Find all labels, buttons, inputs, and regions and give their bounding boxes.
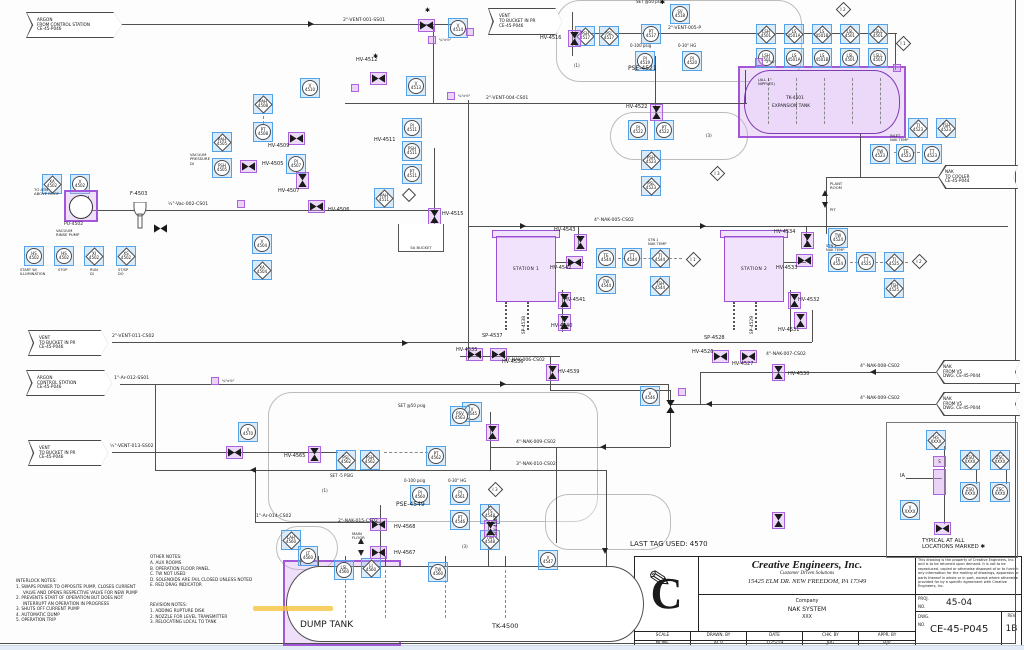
instrument-tsh-4523: TSH4523 — [936, 118, 956, 138]
label-hv-4530: HV-4530 — [788, 372, 809, 378]
label-2-vent-011-cs02: 2"-VENT-011-CS02 — [112, 334, 154, 339]
revision-notes-list: 1. ADDING RUPTURE DISK2. NOZZLE FOR LEVE… — [150, 608, 268, 624]
pipe-line — [468, 100, 469, 360]
flow-arrow — [706, 401, 712, 407]
instrument-pi-4561: PI4561 — [450, 485, 470, 505]
label-hv-4542: HV-4542 — [550, 266, 571, 272]
typical-star: ✱ — [425, 8, 430, 14]
label-pse-4521: PSE-4521 — [628, 66, 657, 73]
instrument-psh-4523: PSH4523 — [641, 150, 661, 170]
instrument-v-4547: V4547 — [538, 550, 558, 570]
pipe-size-tag — [466, 28, 474, 36]
valve-icon — [288, 132, 305, 145]
instrument-ti-4523: TI4523 — [908, 118, 928, 138]
interlock-notes-title: INTERLOCK NOTES: — [16, 578, 144, 583]
instrument-li-4560: LI4560 — [361, 558, 381, 578]
interlock-notes-list: 1. SWAPS POWER TO OPPOSITE PUMP, CLOSES … — [16, 584, 144, 622]
label-vacuum-pressure-di: VACUUM PRESSURE DI — [190, 153, 210, 166]
label-vent-013-ss02: ½"-VENT-013-SS02 — [110, 444, 154, 449]
instrument-ls-4501b: LS4501B — [812, 24, 832, 44]
interlock-diamond: I 1 — [686, 252, 700, 266]
label-0-30-hg: 0-30" HG — [448, 479, 466, 484]
note-item: E. RED DRAG INDICATOR — [150, 582, 268, 587]
company-system-cell: Company NAK SYSTEM XXX — [699, 595, 915, 631]
label-4-nak-005-cs02: 4"-NAK-005-CS02 — [594, 218, 634, 223]
flag-text: CE-45-P044 — [945, 179, 1023, 184]
label-st-sp-do: ST/SP DO — [118, 268, 128, 276]
valve-icon — [574, 234, 587, 251]
dwg-label: DWG. — [918, 614, 929, 619]
label-tk-4501: TK-4501 — [786, 96, 804, 101]
instrument-pah-4511: PAH4511 — [374, 188, 394, 208]
label-set-5-psig: SET -5 PSIG — [330, 474, 353, 479]
instrument-ti-4525: TI4525 — [884, 252, 904, 272]
col-drawn: DRAWN. BY — [691, 632, 747, 641]
station-box-station-2: STATION 2 — [724, 236, 784, 302]
instrument-te-4524: TE4524 — [828, 252, 848, 272]
signal-line — [505, 570, 506, 618]
instrument-v-4514: V4514 — [448, 18, 468, 38]
instrument-psl-4562: PSL4562 — [336, 450, 356, 470]
diamond-symbol — [402, 188, 416, 202]
label-sp-4537: SP-4537 — [482, 334, 503, 340]
label-hv-4506: HV-4506 — [328, 208, 349, 214]
instrument-pah-4508: PAH4508 — [253, 94, 273, 114]
instrument-tt-4544: TT4544 — [622, 248, 642, 268]
pipe-line — [812, 310, 813, 342]
interlock-diamond: I 3 — [488, 482, 502, 496]
pipe-line — [670, 390, 671, 447]
label-pit: PIT — [830, 208, 836, 212]
system-name: NAK SYSTEM — [699, 606, 915, 613]
instrument-ls-4501b: LS4501B — [812, 48, 832, 68]
pipe-line — [120, 24, 460, 25]
valve-icon — [428, 208, 441, 225]
label-sp-4529: SP-4529 — [750, 316, 755, 334]
valve-icon — [226, 446, 243, 459]
flow-arrow — [500, 381, 506, 387]
valve-icon — [712, 350, 729, 363]
valve-icon — [772, 364, 785, 381]
company-logo: C ✎ — [635, 557, 699, 631]
pipe-size-tag: ¾"x½" — [428, 36, 436, 44]
pipe-size-label: ¾"x½" — [222, 379, 234, 383]
label-4-nak-009-cs02: 4"-NAK-009-CS02 — [860, 396, 900, 401]
instrument-xi-4502: XI4502 — [84, 246, 104, 266]
instrument-sv-4518: SV4518 — [670, 4, 690, 24]
label-4-nak-008-cs02: 4"-NAK-008-CS02 — [860, 364, 900, 369]
instrument-pt-4517: PT4517 — [641, 24, 661, 44]
revision-notes: REVISION NOTES: 1. ADDING RUPTURE DISK2.… — [150, 602, 268, 625]
interlock-number: I 3 — [710, 166, 724, 180]
pipe-line — [700, 372, 936, 373]
label-hv-4516: HV-4516 — [540, 36, 561, 42]
flex-spring — [527, 302, 529, 330]
pipe-line — [155, 470, 606, 471]
label-hv-4548: HV-4548 — [494, 516, 499, 535]
label-hv-4512: HV-4512 — [356, 58, 377, 64]
filter-symbol — [130, 202, 150, 234]
proj-no-cell: PROJ. NO. 45-04 — [915, 595, 1021, 612]
instrument-tw-4544: TW4544 — [596, 274, 616, 294]
interlock-diamond: I 1 — [896, 36, 910, 50]
pipe-size-label: ¾"x½" — [458, 94, 470, 98]
pipe-size-tag — [933, 469, 946, 495]
instrument-lt-4560: LT4560 — [298, 546, 318, 566]
valve-icon — [418, 19, 435, 32]
valve-icon — [370, 546, 387, 559]
pipe-line — [490, 447, 670, 448]
instrument-zsc-xxxx: ZSCXXXX — [990, 450, 1010, 470]
pipe-line — [104, 210, 434, 211]
instrument-pi-4522: PI4522 — [628, 120, 648, 140]
offpage-flag-vent-to-bucket-in-pr-ce-45-p046: VENTTO BUCKET IN PRCE-45-P046 — [28, 440, 108, 466]
signal-line — [824, 78, 825, 124]
instrument-pt-4522: PT4522 — [654, 120, 674, 140]
instrument-tt-4523: TT4523 — [922, 144, 942, 164]
pipe-line — [434, 148, 435, 210]
title-block: C ✎ Creative Engineers, Inc. Customer Dr… — [634, 556, 1022, 650]
proj-no-label: NO. — [918, 604, 925, 609]
flow-arrow — [402, 340, 408, 346]
note-item: 2. PREVENTS START OF OPERATION BUT DOES … — [16, 595, 144, 606]
label-1-ar-012-ss01: 1"-Ar-012-SS01 — [114, 376, 149, 381]
instrument-v-xxxx: VXXXX — [900, 500, 920, 520]
note-item: 1. SWAPS POWER TO OPPOSITE PUMP, CLOSES … — [16, 584, 144, 595]
pipe-size-tag — [678, 388, 686, 396]
valve-icon — [154, 224, 167, 233]
flow-arrow — [358, 550, 364, 556]
instrument-lsll-4501: LSLL4501 — [868, 48, 888, 68]
interlock-notes: INTERLOCK NOTES: 1. SWAPS POWER TO OPPOS… — [16, 578, 144, 623]
valve-icon — [772, 512, 785, 529]
instrument-tt-4525: TT4525 — [856, 252, 876, 272]
other-notes: OTHER NOTES: A. AUX ROOMSB. OPERATION FL… — [150, 554, 268, 588]
interlock-number: I 1 — [896, 36, 910, 50]
valve-icon — [568, 30, 581, 47]
valve-icon — [296, 172, 309, 189]
offpage-flag-vent-to-bucket-in-pr-ce-45-p046: VENTTO BUCKET IN PRCE-45-P046 — [28, 330, 108, 356]
label-stop: STOP — [58, 268, 67, 272]
proj-label: PROJ. — [918, 596, 929, 601]
pipe-size-tag: S — [933, 456, 946, 467]
pipe-line — [112, 342, 812, 343]
label-1: (1) — [322, 489, 328, 494]
proj-no-value: 45-04 — [946, 598, 972, 608]
valve-icon — [370, 72, 387, 85]
label-3-nak-010-cs02: 3"-NAK-010-CS02 — [516, 462, 556, 467]
bucket-symbol: 5A BUCKET — [398, 224, 444, 252]
rev-value: 1B — [1002, 624, 1021, 634]
flow-arrow — [250, 467, 256, 473]
flag-text: DWG. CE-45-P044 — [943, 406, 1024, 411]
instrument-psv-4563: PSV4563 — [450, 406, 470, 426]
label-0-100-psig: 0-100 psig — [630, 44, 651, 49]
label-4-nak-007-cs02: 4"-NAK-007-CS02 — [766, 352, 806, 357]
flow-arrow — [822, 190, 828, 196]
instrument-v-4504: V4504 — [252, 234, 272, 254]
instrument-te-4544: TE4544 — [596, 248, 616, 268]
signal-line — [385, 570, 386, 618]
instrument-v-4510: V4510 — [300, 78, 320, 98]
col-appr: APPR. BY — [859, 632, 915, 641]
label-hv-4536: HV-4536 — [502, 360, 523, 366]
label-run-di: RUN DI — [90, 268, 98, 276]
label-hv-4507: HV-4507 — [278, 189, 299, 195]
flow-arrow — [602, 548, 608, 554]
flow-arrow — [308, 21, 314, 27]
company-tagline: Customer Driven Solutions — [699, 571, 915, 576]
pipe-size-tag — [351, 84, 359, 92]
label-4-nak-009-cs02: 4"-NAK-009-CS02 — [516, 440, 556, 445]
disclaimer-cell: This drawing is the property of Creative… — [915, 557, 1021, 595]
pipe-line — [120, 384, 668, 385]
note-item: 5. OPERATION TRIP — [16, 617, 144, 622]
label-2-vent-001-ss01: 2"-VENT-001-SS01 — [343, 18, 385, 23]
label-1: (1) — [574, 64, 580, 69]
pipe-line — [155, 384, 156, 470]
label-hv-4515: HV-4515 — [442, 212, 463, 218]
dwg-no-label: NO. — [918, 622, 925, 627]
station-box-station-1: STATION 1 — [496, 236, 556, 302]
instrument-lsll-4501: LSLL4501 — [868, 24, 888, 44]
instrument-tw-4523: TW4523 — [870, 144, 890, 164]
signal-line — [384, 452, 428, 453]
pipe-size-tag — [237, 200, 245, 208]
pipe-line — [1015, 0, 1016, 644]
instrument-psl-4523: PSL4523 — [641, 176, 661, 196]
pipe-size-label: ¾"x½" — [439, 38, 451, 42]
interlock-number: I 2 — [912, 254, 926, 268]
instrument-tsh-4544: TSH4544 — [650, 276, 670, 296]
valve-icon — [666, 400, 675, 413]
instrument-tw-4560: TW4560 — [428, 562, 448, 582]
instrument-ls-4501a: LS4501A — [784, 48, 804, 68]
offpage-flag-argon-control-station-ce-45-p046: ARGONCONTROL STATIONCE-45-P046 — [26, 370, 112, 396]
label-hv-4505: HV-4505 — [262, 162, 283, 168]
label-stn-2-nak-temp: STN 2 NAK TEMP — [826, 244, 844, 252]
disclaimer-text: This drawing is the property of Creative… — [918, 558, 1019, 589]
valve-icon — [240, 160, 257, 173]
flex-spring — [755, 302, 757, 330]
system-sub: XXX — [699, 615, 915, 620]
note-item: 3. RELOCATING LOCAL TO TANK — [150, 619, 268, 624]
instrument-lsh-4501: LSH4501 — [756, 24, 776, 44]
flow-arrow — [600, 444, 606, 450]
flow-arrow — [700, 223, 706, 229]
label-typical-at-all-locations-marked: TYPICAL AT ALL LOCATIONS MARKED ✱ — [922, 538, 985, 551]
label-0-30-hg: 0-30" HG — [678, 44, 696, 49]
pipe-line — [0, 643, 1016, 644]
interlock-number: I 2 — [836, 2, 850, 16]
company-name: Creative Engineers, Inc. — [699, 559, 915, 571]
label-vac-002-cs01: ½"-Vac-002-CS01 — [168, 202, 208, 207]
instrument-v-4546: V4546 — [640, 386, 660, 406]
label-inlet-nak-temp: INLET NAK TEMP — [890, 134, 908, 142]
instrument-tsh-4525: TSH4525 — [884, 278, 904, 298]
company-label: Company — [699, 599, 915, 604]
flag-text: CE-45-P046 — [39, 345, 117, 350]
instrument-zsc-xxxx: ZSCXXXX — [990, 482, 1010, 502]
pipe-line — [700, 372, 701, 404]
pump-circle — [69, 195, 93, 219]
flow-arrow — [822, 202, 828, 208]
flag-text: DWG. CE-45-P044 — [943, 374, 1024, 379]
instrument-lsl-4560: LSL4560 — [334, 560, 354, 580]
flow-arrow — [520, 223, 526, 229]
instrument-xs-4502: XS4502 — [116, 246, 136, 266]
valve-icon — [801, 232, 814, 249]
label-hv-4509: HV-4509 — [268, 144, 289, 150]
label-hv-4533: HV-4533 — [776, 266, 797, 272]
label-hv-4526: HV-4526 — [692, 350, 713, 356]
label-hv-4527: HV-4527 — [732, 362, 753, 368]
instrument-ti-4544: TI4544 — [650, 248, 670, 268]
revision-notes-title: REVISION NOTES: — [150, 602, 268, 607]
interlock-diamond: I 2 — [836, 2, 850, 16]
instrument-zso-xxxx: ZSOXXXX — [960, 482, 980, 502]
interlock-diamond: I 3 — [710, 166, 724, 180]
label-hv-4543: HV-4543 — [554, 228, 575, 234]
instrument-pi-4507: PI4507 — [286, 154, 306, 174]
col-scale: SCALE — [635, 632, 691, 641]
pid-drawing-canvas: INTERLOCK NOTES: 1. SWAPS POWER TO OPPOS… — [0, 0, 1024, 650]
valve-icon — [308, 446, 321, 463]
pipe-line — [826, 177, 938, 178]
instrument-pi-4511: PI4511 — [402, 118, 422, 138]
instrument-pi-4520: PI4520 — [682, 51, 702, 71]
other-notes-title: OTHER NOTES: — [150, 554, 268, 559]
label-hv-4534: HV-4534 — [774, 230, 795, 236]
vacuum-rinse-pump — [64, 190, 98, 222]
flag-text: CE-45-P046 — [37, 27, 131, 32]
viewer-bottom-strip — [0, 645, 1024, 650]
label-0-100-psig: 0-100 psig — [404, 479, 425, 484]
label-expansion-tank: EXPANSION TANK — [772, 104, 810, 109]
instrument-hs-4502: HS4502 — [24, 246, 44, 266]
label-dump-tank: DUMP TANK — [300, 620, 353, 630]
label-hv-4539: HV-4539 — [558, 370, 579, 376]
label-to-atm-above-roof: TO ATM ABOVE ROOF — [34, 188, 59, 197]
label-ia: IA — [900, 474, 905, 480]
signal-line — [880, 78, 881, 124]
dwg-no-value: CE-45-P045 — [930, 624, 988, 635]
col-date: DATE — [747, 632, 803, 641]
offpage-flag-nak-from-v5-dwg-ce-45-p044: NAKFROM V5DWG. CE-45-P044 — [936, 360, 1020, 384]
label-1-ar-014-cs02: 1"-Ar-014-CS02 — [256, 514, 291, 519]
pipe-size-tag: ¾"x½" — [447, 92, 455, 100]
pipe-size-tag: 2"x1" — [755, 58, 763, 66]
company-name-cell: Creative Engineers, Inc. Customer Driven… — [699, 557, 915, 595]
label-hv-4535: HV-4535 — [456, 348, 477, 354]
instrument-zso-xxxx: ZSOXXXX — [960, 450, 980, 470]
label-set-50-psig: SET @50 psig — [398, 404, 425, 409]
flex-spring — [733, 302, 735, 330]
label-stn-1-nak-temp: STN 1 NAK TEMP — [648, 238, 666, 246]
company-address: 15425 ELM DR. NEW FREEDOM, PA 17349 — [699, 578, 915, 585]
flag-text: CE-45-P046 — [39, 455, 117, 460]
signal-line — [852, 78, 853, 124]
yellow-highlight-marker — [253, 606, 333, 611]
offpage-flag-argon-from-control-station-ce-45-p046: ARGONFROM CONTROL STATIONCE-45-P046 — [26, 12, 122, 38]
col-chk: CHK. BY — [803, 632, 859, 641]
offpage-flag-nak-from-v5-dwg-ce-45-p044: NAKFROM V5DWG. CE-45-P044 — [936, 392, 1020, 416]
pipe-line — [745, 70, 746, 103]
label-set-50-psig: SET @50 psig — [636, 0, 663, 5]
label-hv-4567: HV-4567 — [394, 551, 415, 557]
label-2-vent-005-p: 2"-VENT-005-P — [668, 26, 701, 31]
offpage-flag-nak-to-cooler-ce-45-p044: NAKTO COOLERCE-45-P044 — [938, 165, 1018, 189]
label-f-4503: F-4503 — [130, 192, 147, 198]
instrument-pt-4511: PT4511 — [402, 164, 422, 184]
label-all-1-nipples: (ALL 1" NIPPLES) — [758, 78, 775, 87]
other-notes-list: A. AUX ROOMSB. OPERATION FLOOR PANELC. T… — [150, 560, 268, 587]
instrument-v-4513: V4513 — [406, 76, 426, 96]
instrument-hs-4502: HS4502 — [54, 246, 74, 266]
label-hv-4511: HV-4511 — [374, 138, 395, 144]
pipe-size-tag — [893, 64, 901, 72]
valve-icon — [934, 522, 951, 535]
pipe-size-label: 2"x1" — [766, 60, 776, 64]
label-3: (3) — [462, 545, 468, 550]
label-2-nak-015-cs02: 2"-NAK-015-CS02 — [338, 519, 378, 524]
label-tk-4500: TK-4500 — [492, 623, 518, 630]
instrument-te-4523: TE4523 — [896, 144, 916, 164]
interlock-number: I 1 — [686, 252, 700, 266]
flow-arrow — [870, 369, 876, 375]
label-3: (3) — [706, 134, 712, 139]
pipe-line — [318, 556, 319, 566]
instrument-ls-4501a: LS4501A — [784, 24, 804, 44]
label-main-floor: MAIN FLOOR — [352, 532, 365, 541]
instrument-xa-4504: XA4504 — [252, 260, 272, 280]
valve-icon — [650, 104, 663, 121]
instrument-v-4570: V4570 — [238, 422, 258, 442]
pipe-line — [860, 134, 861, 177]
pipe-line — [490, 412, 491, 470]
label-hv-4532: HV-4532 — [798, 298, 819, 304]
instrument-psl-4517: PSL4517 — [599, 26, 619, 46]
label-plant-room: PLANT ROOM — [830, 182, 842, 191]
label-hv-4565: HV-4565 — [284, 454, 305, 460]
interlock-number: I 3 — [488, 482, 502, 496]
label-hv-4540: HV-4540 — [551, 324, 572, 330]
label-pse-4549: PSE-4549 — [396, 502, 425, 509]
instrument-pt-4546: PT4546 — [450, 510, 470, 530]
instrument-psh-4511: PSH4511 — [402, 141, 422, 161]
pipe-line — [468, 226, 1008, 227]
label-vacuum-rinse-pump: VACUUM RINSE PUMP — [56, 229, 79, 238]
valve-icon — [486, 424, 499, 441]
instrument-psh-4562: PSH4562 — [360, 450, 380, 470]
label-sp-4528: SP-4528 — [704, 336, 725, 342]
pipe-line — [556, 447, 557, 543]
valve-icon — [308, 200, 325, 213]
label-hv-4541: HV-4541 — [564, 298, 585, 304]
instrument-lsl-4501: LSL4501 — [840, 24, 860, 44]
flex-spring — [505, 302, 507, 330]
label-hv-4531: HV-4531 — [778, 328, 799, 334]
instrument-pah-4505: PAH4505 — [212, 132, 232, 152]
offpage-flag-vent-to-bucket-in-pr-ce-45-p046: VENTTO BUCKET IN PRCE-45-P046 — [488, 8, 562, 35]
label-last-tag-used-4570: LAST TAG USED: 4570 — [630, 540, 708, 548]
flag-text: CE-45-P046 — [37, 385, 121, 390]
instrument-pt-4562: PT4562 — [426, 446, 446, 466]
label-pu-4502: PU-4502 — [64, 222, 83, 227]
pipe-line — [345, 103, 747, 104]
label-hv-4568: HV-4568 — [394, 525, 415, 531]
rev-label: REV — [1002, 613, 1021, 618]
